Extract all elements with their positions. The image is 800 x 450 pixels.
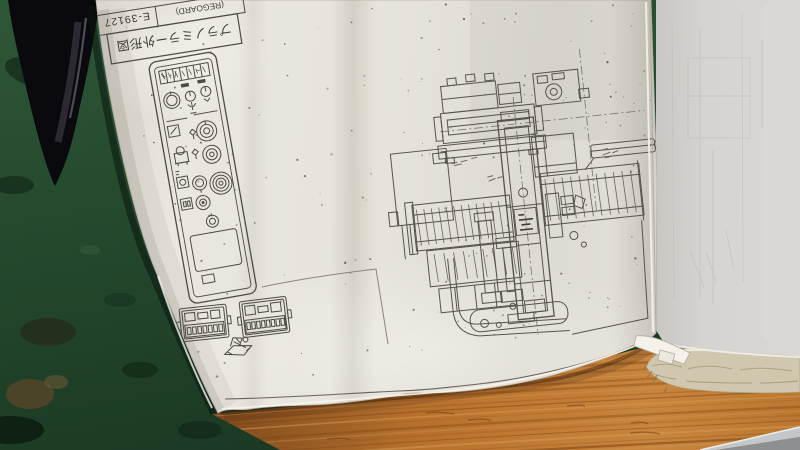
right-sheet xyxy=(656,0,800,357)
panel-label-b xyxy=(198,79,205,83)
panel-label-a xyxy=(181,83,188,87)
photo-stage: プラノミラー外形図 (REGOARD) E-39127 xyxy=(0,0,800,450)
photo: プラノミラー外形図 (REGOARD) E-39127 xyxy=(0,0,800,450)
